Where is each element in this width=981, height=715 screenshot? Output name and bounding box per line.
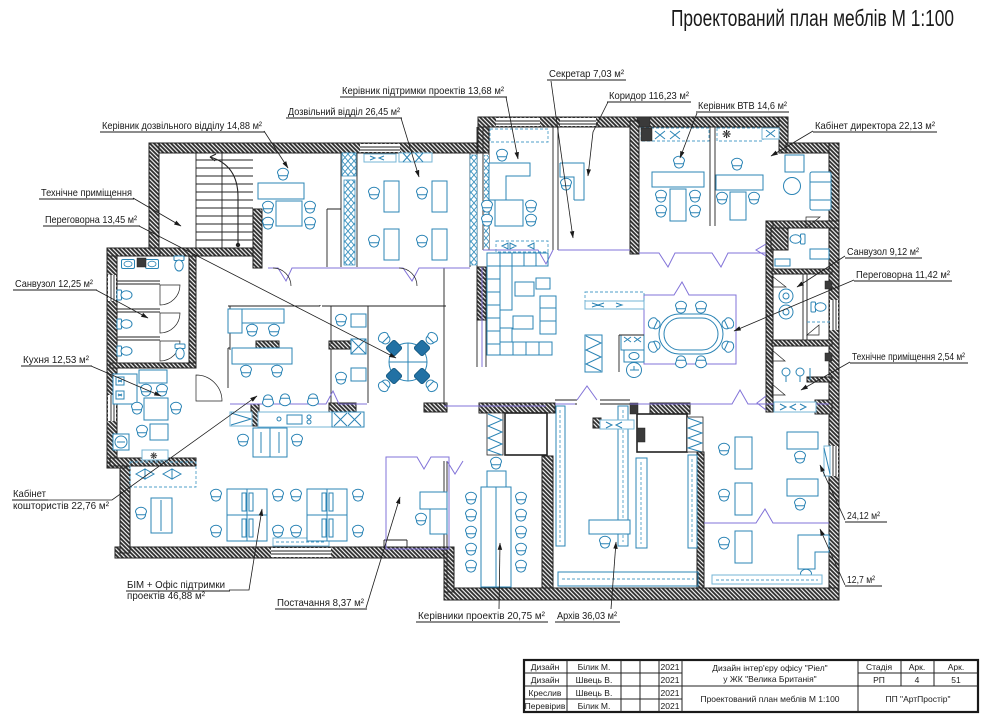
- svg-text:у ЖК "Велика Британія": у ЖК "Велика Британія": [723, 674, 816, 684]
- svg-text:Санвузол 9,12 м²: Санвузол 9,12 м²: [847, 246, 919, 258]
- svg-text:❋: ❋: [150, 451, 158, 461]
- svg-text:Білик М.: Білик М.: [578, 701, 611, 711]
- svg-text:❋: ❋: [722, 129, 731, 141]
- svg-text:Дозвільний відділ 26,45 м²: Дозвільний відділ 26,45 м²: [288, 106, 400, 118]
- svg-text:2021: 2021: [661, 662, 680, 672]
- svg-text:РП: РП: [873, 675, 885, 685]
- svg-text:Секретар 7,03 м²: Секретар 7,03 м²: [549, 68, 624, 80]
- svg-text:коштористів 22,76 м²: коштористів 22,76 м²: [13, 500, 109, 512]
- svg-text:Дизайн інтер'єру офісу "Ріел": Дизайн інтер'єру офісу "Ріел": [712, 663, 827, 673]
- svg-text:Перевірив: Перевірив: [525, 701, 566, 711]
- svg-text:Стадія: Стадія: [866, 662, 893, 672]
- svg-text:Проектований план меблів М 1:1: Проектований план меблів М 1:100: [700, 694, 839, 704]
- svg-text:Проектований план меблів М 1:1: Проектований план меблів М 1:100: [671, 5, 954, 31]
- svg-text:Санвузол 12,25 м²: Санвузол 12,25 м²: [15, 278, 93, 290]
- svg-text:24,12 м²: 24,12 м²: [847, 510, 880, 522]
- svg-text:Коридор 116,23 м²: Коридор 116,23 м²: [609, 90, 689, 102]
- svg-text:Кухня 12,53 м²: Кухня 12,53 м²: [23, 354, 89, 366]
- svg-text:Постачання 8,37 м²: Постачання 8,37 м²: [277, 597, 364, 609]
- svg-text:2021: 2021: [661, 675, 680, 685]
- svg-text:Кабінет директора 22,13 м²: Кабінет директора 22,13 м²: [815, 120, 935, 132]
- svg-text:Швець В.: Швець В.: [576, 675, 613, 685]
- svg-text:Керівник ВТВ 14,6 м²: Керівник ВТВ 14,6 м²: [698, 100, 787, 112]
- svg-text:Технічне приміщення: Технічне приміщення: [41, 187, 132, 199]
- svg-text:Дизайн: Дизайн: [531, 675, 560, 685]
- svg-text:Швець В.: Швець В.: [576, 688, 613, 698]
- svg-text:Переговорна 13,45 м²: Переговорна 13,45 м²: [45, 214, 137, 226]
- svg-text:ПП "АртПростір": ПП "АртПростір": [885, 694, 950, 704]
- svg-text:4: 4: [915, 675, 920, 685]
- svg-text:Білик М.: Білик М.: [578, 662, 611, 672]
- svg-text:2021: 2021: [661, 701, 680, 711]
- svg-text:проектів 46,88 м²: проектів 46,88 м²: [127, 590, 205, 602]
- svg-text:Дизайн: Дизайн: [531, 662, 560, 672]
- svg-text:Керівник дозвільного відділу 1: Керівник дозвільного відділу 14,88 м²: [102, 120, 262, 132]
- svg-text:Креслив: Креслив: [529, 688, 562, 698]
- svg-text:Арк.: Арк.: [909, 662, 925, 672]
- svg-text:51: 51: [951, 675, 961, 685]
- svg-text:Керівник підтримки проектів 13: Керівник підтримки проектів 13,68 м²: [342, 85, 504, 97]
- svg-text:Технічне приміщення 2,54 м²: Технічне приміщення 2,54 м²: [852, 351, 965, 363]
- svg-text:Керівники проектів 20,75 м²: Керівники проектів 20,75 м²: [418, 610, 545, 622]
- svg-text:2021: 2021: [661, 688, 680, 698]
- svg-text:12,7 м²: 12,7 м²: [847, 574, 875, 586]
- svg-text:Арк.: Арк.: [948, 662, 964, 672]
- svg-text:Архів 36,03 м²: Архів 36,03 м²: [557, 610, 617, 622]
- svg-text:Кабінет: Кабінет: [13, 488, 46, 500]
- svg-text:Переговорна 11,42 м²: Переговорна 11,42 м²: [856, 269, 950, 281]
